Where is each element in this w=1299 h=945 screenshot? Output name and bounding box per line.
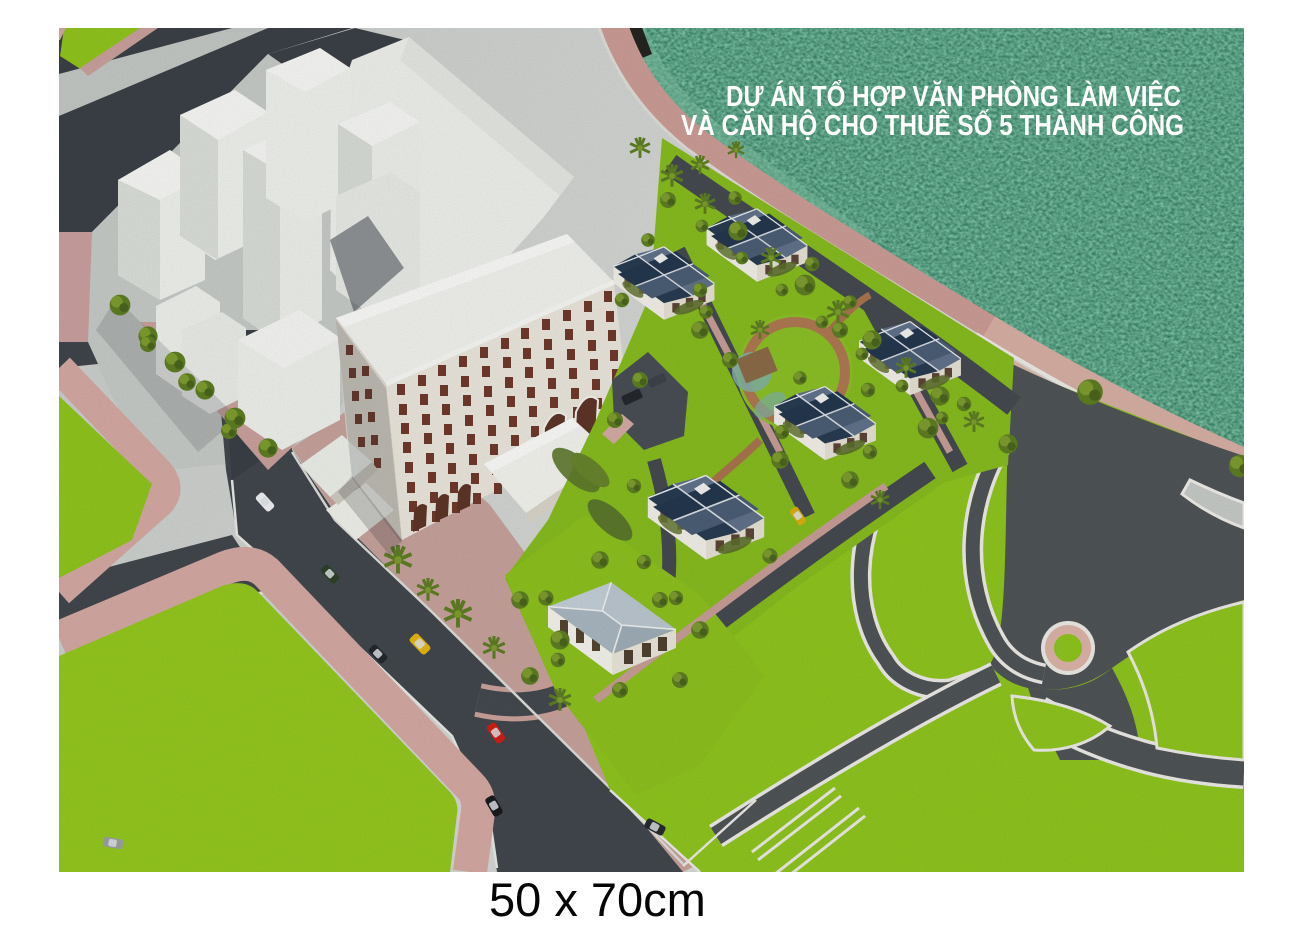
svg-text:DỰ ÁN TỔ HỢP VĂN PHÒNG LÀM VIỆ: DỰ ÁN TỔ HỢP VĂN PHÒNG LÀM VIỆC [726, 79, 1181, 113]
svg-text:50 x 70cm: 50 x 70cm [489, 873, 706, 926]
svg-text:VÀ CĂN HỘ CHO THUÊ SỐ 5 THÀNH: VÀ CĂN HỘ CHO THUÊ SỐ 5 THÀNH CÔNG [681, 108, 1184, 142]
